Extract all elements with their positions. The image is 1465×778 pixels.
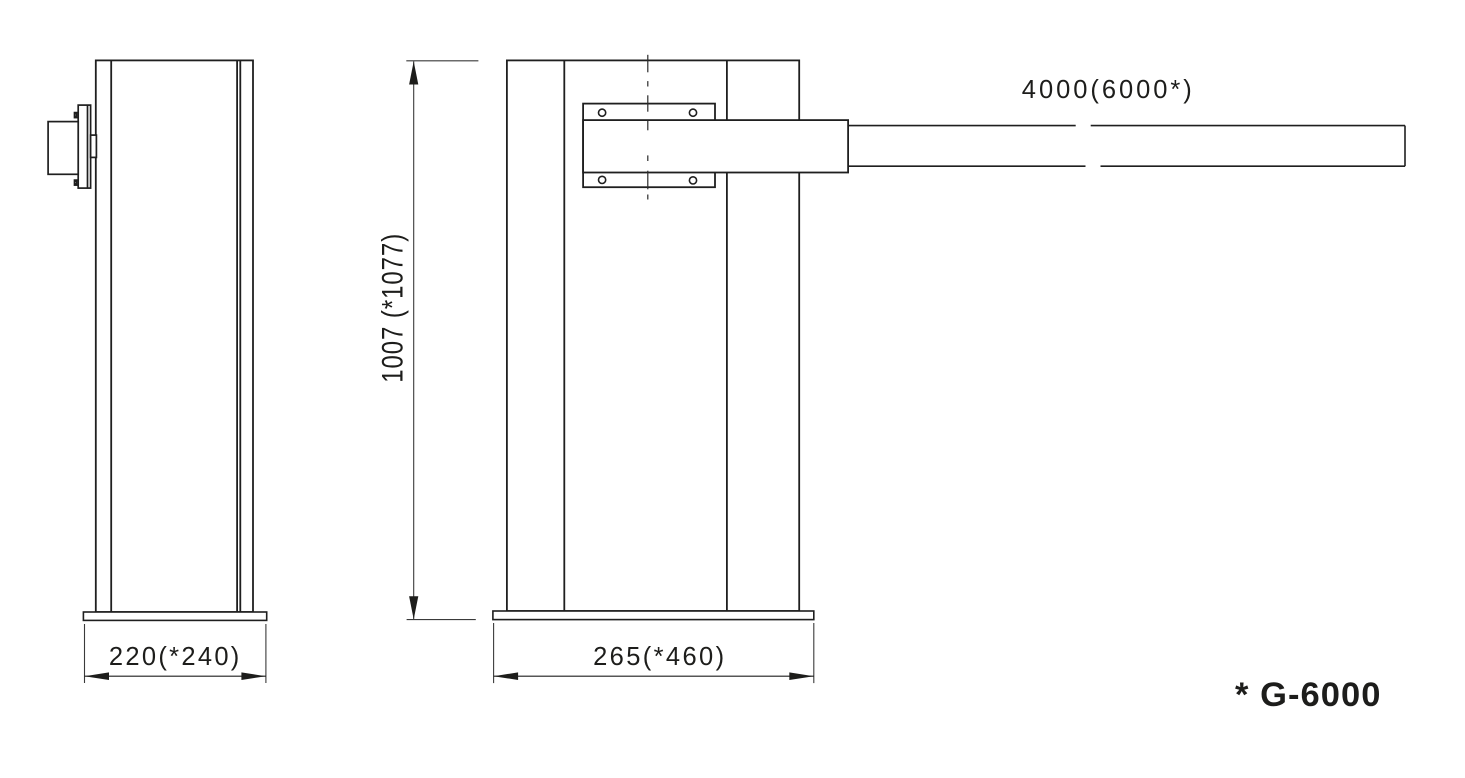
svg-text:265(*460): 265(*460) bbox=[593, 643, 724, 671]
svg-text:* G-6000: * G-6000 bbox=[1235, 676, 1380, 714]
svg-text:1007 (*1077): 1007 (*1077) bbox=[375, 234, 409, 383]
svg-text:220(*240): 220(*240) bbox=[109, 643, 239, 671]
svg-text:4000(6000*): 4000(6000*) bbox=[1022, 76, 1192, 104]
